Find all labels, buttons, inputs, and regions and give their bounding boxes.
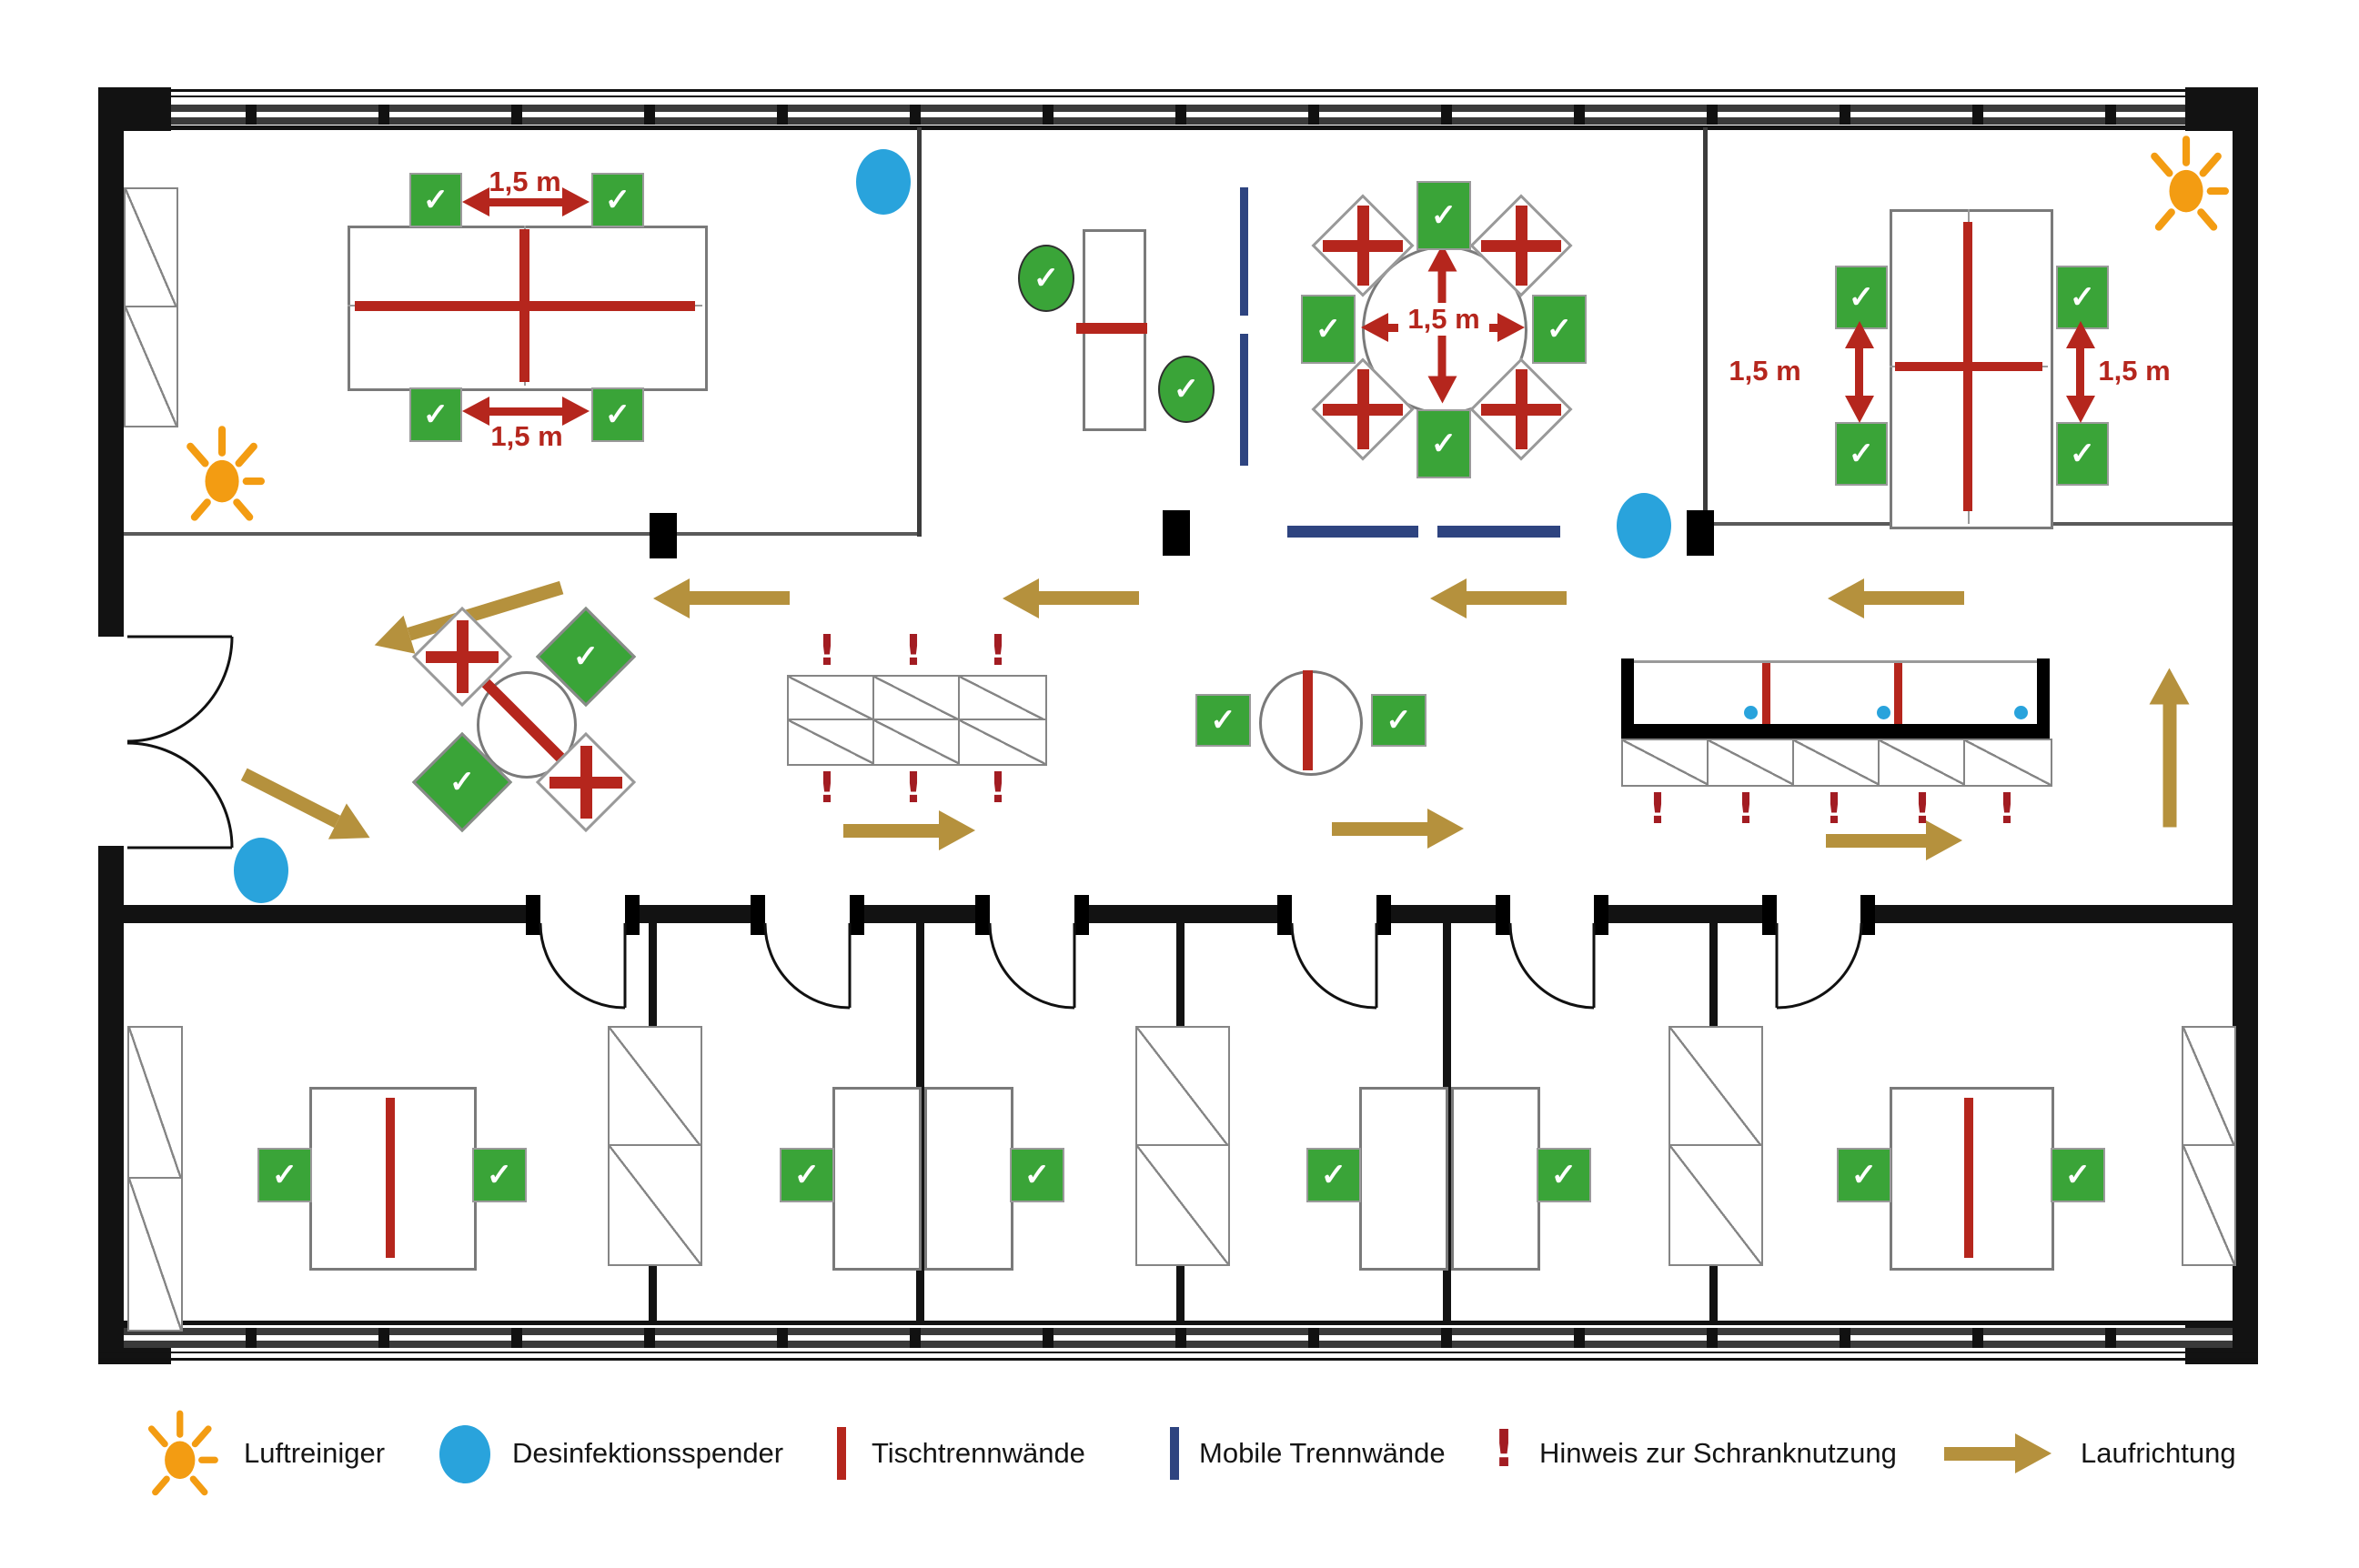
door-gap [765, 903, 850, 925]
door-post [1277, 895, 1292, 935]
exclamation-mark: ! [900, 629, 927, 671]
outer-bottom-line [98, 1352, 2258, 1353]
corner-top-right [2185, 87, 2258, 131]
distance-label: 1,5 m [481, 420, 572, 453]
door-post [1074, 895, 1089, 935]
cabinet-cell [2182, 1026, 2236, 1148]
seat-allowed: ✓ [1532, 295, 1587, 364]
check-icon: ✓ [605, 397, 631, 433]
wall-left-upper [98, 87, 124, 637]
check-icon: ✓ [2065, 1157, 2092, 1193]
door-post [1860, 895, 1875, 935]
legend-label-dispenser: Desinfektionsspender [512, 1437, 783, 1470]
wall-room-b-c [1703, 127, 1708, 528]
cabinet-cell [608, 1026, 702, 1148]
check-icon: ✓ [1321, 1157, 1347, 1193]
seat-allowed: ✓ [409, 387, 462, 442]
locker-cell [787, 675, 876, 722]
disinfectant-dispenser-icon [439, 1425, 490, 1483]
seat-allowed: ✓ [1835, 422, 1888, 486]
disinfectant-dispenser-icon [856, 149, 911, 215]
office-floorplan: ✓ ✓ ✓ ✓ 1,5 m 1,5 m ✓ ✓ 1,5 m ✓ ✓ ✓ ✓ ✓ … [0, 0, 2359, 1568]
outer-top-line [98, 89, 2258, 92]
seat-allowed: ✓ [257, 1148, 312, 1202]
counter-front [1621, 724, 2050, 739]
desk [832, 1087, 922, 1271]
seat-allowed: ✓ [1195, 694, 1251, 747]
locker-cell [872, 675, 962, 722]
window-band-top [124, 105, 2233, 125]
check-icon: ✓ [1174, 371, 1200, 407]
seat-allowed: ✓ [1835, 266, 1888, 329]
check-icon: ✓ [1851, 1157, 1878, 1193]
door-gap [1777, 903, 1861, 925]
blocked-cross [457, 620, 469, 693]
locker-cell [787, 719, 876, 766]
seat-allowed: ✓ [1301, 295, 1356, 364]
corner-top-left [98, 87, 171, 131]
seat-allowed: ✓ [2051, 1148, 2105, 1202]
check-icon: ✓ [272, 1157, 298, 1193]
table-partition [386, 1098, 395, 1258]
door-gap [1510, 903, 1595, 925]
blocked-cross [1357, 206, 1369, 286]
exclamation-mark: ! [984, 629, 1012, 671]
distance-arrow [462, 186, 590, 217]
distance-label: 1,5 m [1398, 303, 1489, 336]
door-gap [1292, 903, 1376, 925]
room1-door-arc [540, 923, 625, 1008]
check-icon: ✓ [1547, 311, 1573, 347]
entrance-door-arc-top [127, 637, 232, 741]
door-post [1594, 895, 1608, 935]
desk [1359, 1087, 1448, 1271]
seat-allowed: ✓ [1306, 1148, 1361, 1202]
disinfectant-dispenser-dot [1744, 706, 1758, 719]
locker-cell [1621, 739, 1710, 787]
exclamation-mark: ! [900, 767, 927, 809]
check-icon: ✓ [2070, 436, 2096, 472]
seat-allowed: ✓ [1537, 1148, 1591, 1202]
walking-arrow [1828, 578, 1964, 618]
door-gap [990, 903, 1074, 925]
door-marker-room-a [650, 513, 677, 558]
seat-allowed: ✓ [1371, 694, 1426, 747]
exclamation-mark: ! [1820, 788, 1848, 829]
cabinet-cell [1135, 1026, 1230, 1148]
seat-allowed: ✓ [1010, 1148, 1064, 1202]
seat-allowed: ✓ [591, 173, 644, 227]
table-partition [1303, 670, 1313, 770]
cabinet-cell [127, 1177, 183, 1332]
seat-allowed: ✓ [2056, 422, 2109, 486]
disinfectant-dispenser-icon [1617, 493, 1671, 558]
mobile-partition [1437, 526, 1560, 538]
cabinet-cell [1135, 1144, 1230, 1266]
room4-door-arc [1292, 923, 1376, 1008]
check-icon: ✓ [423, 182, 449, 218]
table-partition [1894, 663, 1902, 724]
seat-allowed: ✓ [1018, 245, 1074, 312]
check-icon: ✓ [423, 397, 449, 433]
door-post [1376, 895, 1391, 935]
door-post [625, 895, 640, 935]
table-partition-icon [837, 1427, 846, 1480]
wall-room-a-b [917, 127, 922, 537]
seat-allowed: ✓ [780, 1148, 834, 1202]
disinfectant-dispenser-dot [2014, 706, 2028, 719]
locker-cell [1707, 739, 1796, 787]
seat-allowed: ✓ [1158, 356, 1215, 423]
cabinet-cell [127, 1026, 183, 1181]
check-icon: ✓ [1210, 702, 1236, 739]
walking-arrow-icon [1944, 1433, 2052, 1473]
air-purifier-icon [2140, 131, 2245, 236]
table-partition [519, 229, 529, 382]
blocked-cross [1357, 369, 1369, 449]
room3-door-arc [990, 923, 1074, 1008]
locker-cell [1963, 739, 2052, 787]
exclamation-mark: ! [813, 629, 841, 671]
distance-label: 1,5 m [1719, 355, 1810, 387]
mobile-partition [1240, 187, 1248, 316]
distance-arrow [1844, 321, 1875, 423]
room-a-front-wall [124, 532, 917, 536]
cabinet-cell [608, 1144, 702, 1266]
locker-cell [958, 719, 1047, 766]
door-post [1496, 895, 1510, 935]
room6-door-arc [1777, 923, 1861, 1008]
walking-arrow [2150, 668, 2190, 828]
room2-door-arc [765, 923, 850, 1008]
locker-cell [872, 719, 962, 766]
walking-arrow [1430, 578, 1567, 618]
seat-allowed: ✓ [472, 1148, 527, 1202]
seat-allowed: ✓ [591, 387, 644, 442]
seat-allowed: ✓ [2056, 266, 2109, 329]
locker-cell [958, 675, 1047, 722]
check-icon: ✓ [487, 1157, 513, 1193]
door-gap [540, 903, 625, 925]
seat-allowed: ✓ [1416, 181, 1471, 250]
check-icon: ✓ [1316, 311, 1342, 347]
exclamation-mark: ! [813, 767, 841, 809]
walking-arrow [1003, 578, 1139, 618]
door-post [526, 895, 540, 935]
desk [924, 1087, 1013, 1271]
check-icon: ✓ [1024, 1157, 1051, 1193]
door-post [850, 895, 864, 935]
cabinet-cell [1668, 1144, 1763, 1266]
check-icon: ✓ [1431, 197, 1457, 234]
cabinet-cell [2182, 1144, 2236, 1266]
door-post [1762, 895, 1777, 935]
exclamation-mark: ! [1732, 788, 1759, 829]
wall-right [2233, 87, 2258, 1364]
check-icon: ✓ [794, 1157, 821, 1193]
seat-allowed: ✓ [550, 621, 621, 692]
exclamation-mark: ! [1993, 788, 2021, 829]
wall-top-inner [124, 126, 2233, 130]
blocked-cross [1516, 206, 1527, 286]
legend-label-walking-direction: Laufrichtung [2081, 1437, 2236, 1470]
desk [1451, 1087, 1540, 1271]
seat-allowed: ✓ [427, 747, 498, 818]
door-marker-room-c [1687, 510, 1714, 556]
mobile-partition [1287, 526, 1418, 538]
mobile-partition-icon [1170, 1427, 1179, 1480]
walking-arrow [653, 578, 790, 618]
distance-label: 1,5 m [2089, 355, 2180, 387]
exclamation-mark: ! [1644, 788, 1671, 829]
disinfectant-dispenser-dot [1877, 706, 1890, 719]
check-icon: ✓ [1849, 279, 1875, 316]
walking-arrow [843, 810, 975, 850]
walking-arrow [1332, 809, 1464, 849]
check-icon: ✓ [2070, 279, 2096, 316]
legend-label-table-partition: Tischtrennwände [872, 1437, 1085, 1470]
legend-label-cabinet-notice: Hinweis zur Schranknutzung [1539, 1437, 1897, 1470]
locker-cell [1792, 739, 1881, 787]
wall-left-lower [98, 846, 124, 1364]
entrance-door-arc-bottom [127, 743, 232, 848]
check-icon: ✓ [1849, 436, 1875, 472]
outer-top-line2 [98, 95, 2258, 97]
air-purifier-icon [176, 421, 281, 527]
check-icon: ✓ [1431, 426, 1457, 462]
check-icon: ✓ [449, 764, 476, 800]
mobile-partition [1240, 334, 1248, 466]
seat-allowed: ✓ [409, 173, 462, 227]
door-post [751, 895, 765, 935]
room5-door-arc [1510, 923, 1594, 1008]
locker-cell [1878, 739, 1967, 787]
door-post [975, 895, 990, 935]
cabinet-cell [1668, 1026, 1763, 1148]
disinfectant-dispenser-icon [234, 838, 288, 903]
cabinet-cell [124, 306, 178, 427]
legend-label-mobile-partition: Mobile Trennwände [1199, 1437, 1446, 1470]
counter-top-edge [1628, 660, 2043, 663]
air-purifier-icon [138, 1406, 233, 1501]
outer-bottom-line2 [98, 1358, 2258, 1361]
seat-allowed: ✓ [1416, 409, 1471, 478]
legend-label-air-purifier: Luftreiniger [244, 1437, 385, 1470]
exclamation-mark: ! [1909, 788, 1936, 829]
check-icon: ✓ [1551, 1157, 1578, 1193]
exclamation-mark: ! [984, 767, 1012, 809]
check-icon: ✓ [573, 638, 600, 675]
check-icon: ✓ [1386, 702, 1412, 739]
table-partition [1076, 323, 1147, 334]
door-marker-room-b [1163, 510, 1190, 556]
window-band-bottom [124, 1328, 2233, 1348]
blocked-cross [580, 746, 592, 819]
seat-allowed: ✓ [1837, 1148, 1891, 1202]
cabinet-cell [124, 187, 178, 309]
exclamation-icon: ! [1487, 1424, 1520, 1475]
check-icon: ✓ [1033, 260, 1060, 297]
blocked-cross [1516, 369, 1527, 449]
table-partition [1762, 663, 1770, 724]
table-partition [1895, 362, 2042, 371]
check-icon: ✓ [605, 182, 631, 218]
table-partition [1964, 1098, 1973, 1258]
